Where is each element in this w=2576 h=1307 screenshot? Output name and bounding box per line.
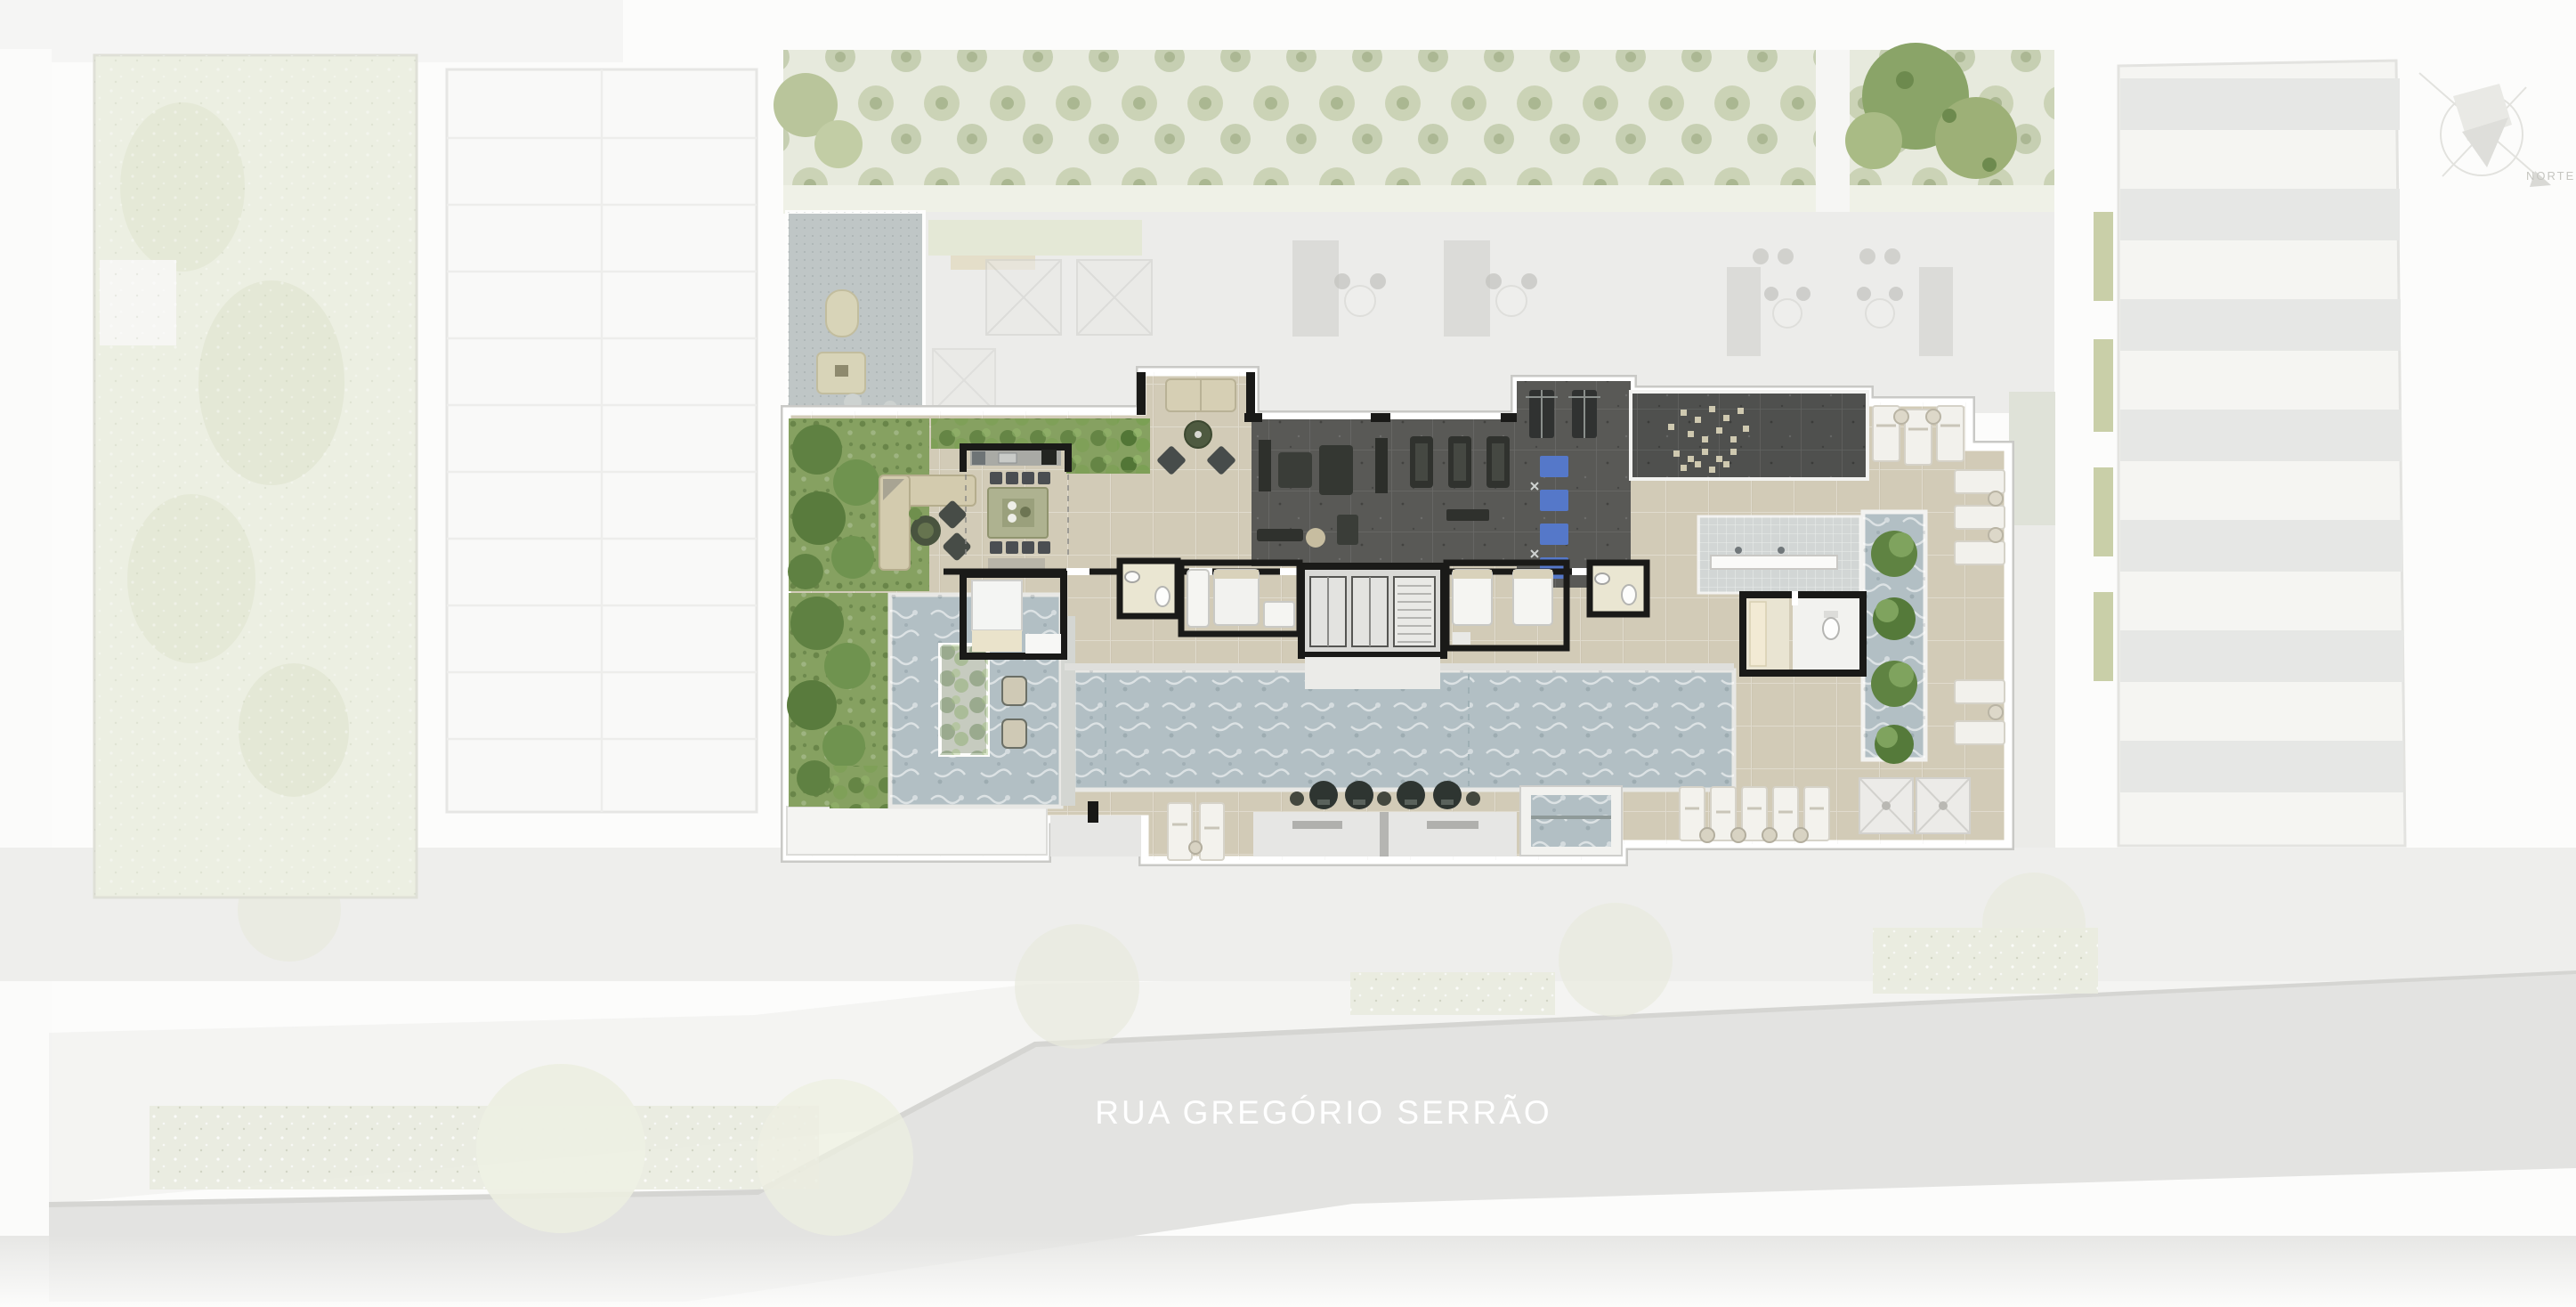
palm-tree-icon xyxy=(787,680,837,730)
pool-planter-texture xyxy=(940,645,988,755)
sink-icon xyxy=(1595,573,1609,584)
site-plan-canvas: RUA GREGÓRIO SERRÃO xyxy=(0,0,2576,1307)
entry-court xyxy=(787,212,924,415)
palm-tree-icon xyxy=(792,425,842,475)
kitchen-cooktop-icon xyxy=(1041,450,1057,465)
site-plan-drawing: RUA GREGÓRIO SERRÃO xyxy=(0,0,2576,1307)
jacuzzi xyxy=(1520,786,1622,856)
wall-pier xyxy=(1501,413,1519,422)
elevator-lobby xyxy=(1305,657,1440,689)
vanity-counter xyxy=(1711,556,1837,569)
palm-tree-icon xyxy=(831,536,874,579)
dumbbell-rack-icon xyxy=(1446,509,1489,521)
garden-texture xyxy=(94,55,417,897)
sun-lounger xyxy=(1955,470,2005,493)
smith-machine-icon xyxy=(1375,438,1388,493)
egg-chair-cushion xyxy=(1317,800,1330,805)
terrace-planter-faded xyxy=(1444,240,1490,337)
sun-lounger xyxy=(1168,803,1192,860)
side-table xyxy=(1700,828,1714,842)
sun-lounger xyxy=(1955,680,2005,703)
round-armchair-cushion xyxy=(918,523,934,539)
sun-lounger xyxy=(1200,803,1224,860)
terrace-umbrella-faded xyxy=(986,260,1061,335)
sauna-bench xyxy=(1750,602,1766,666)
side-planting-strip xyxy=(2009,392,2055,525)
room-walls xyxy=(1120,561,1178,616)
street-tree xyxy=(476,1064,645,1233)
street-bottom-fade xyxy=(0,1236,2576,1307)
terrace-umbrella-faded xyxy=(1077,260,1152,335)
table-plate xyxy=(1008,501,1017,510)
cable-machine-icon xyxy=(1319,445,1353,495)
corner-tree xyxy=(814,120,863,168)
tree-shadow-detail xyxy=(1942,109,1956,123)
egg-chair xyxy=(1433,781,1462,809)
room-bench xyxy=(1453,632,1470,645)
side-table xyxy=(1926,410,1940,424)
in-pool-lounger xyxy=(1002,719,1026,748)
top-left-wash xyxy=(0,0,623,62)
wall-pier xyxy=(1371,413,1390,422)
bed-headboard xyxy=(1513,570,1552,579)
palm-tree-icon xyxy=(797,760,832,796)
palm-tree-icon xyxy=(788,554,823,589)
fire-bowl-icon xyxy=(1290,792,1304,806)
street-name-label: RUA GREGÓRIO SERRÃO xyxy=(1095,1094,1551,1131)
street-zone: RUA GREGÓRIO SERRÃO xyxy=(0,848,2576,1307)
walkway-south xyxy=(787,807,1047,855)
egg-chair-cushion xyxy=(1353,800,1365,805)
side-table xyxy=(1989,705,2003,719)
table-plate xyxy=(1008,514,1017,523)
faucet-icon xyxy=(1778,547,1785,554)
large-tree xyxy=(1845,112,1902,169)
upper-terrace-faded xyxy=(922,212,2054,413)
porch-planter xyxy=(1292,821,1342,829)
hedge-gap xyxy=(1816,50,1850,212)
egg-chair xyxy=(1309,781,1338,809)
steam-bench xyxy=(972,630,1022,652)
terrace-hedge-faded xyxy=(928,220,1142,256)
kitchen-sink-icon xyxy=(999,453,1017,463)
massage-bed xyxy=(1187,570,1209,627)
terrace-planter-faded xyxy=(1919,267,1953,356)
egg-chair xyxy=(1397,781,1425,809)
side-table xyxy=(1989,491,2003,506)
steam-glass-cabin xyxy=(972,580,1022,630)
hedge-band-light-edge xyxy=(783,185,2054,214)
side-table xyxy=(1189,841,1202,854)
palm-tree-icon xyxy=(824,643,871,689)
door-gap xyxy=(1792,591,1798,605)
porch-divider xyxy=(1380,812,1389,856)
toilet-icon xyxy=(1155,587,1170,606)
solarium-texture xyxy=(1631,392,1867,479)
sink-icon xyxy=(1125,572,1139,582)
planting-segment xyxy=(2094,467,2113,556)
sun-lounger xyxy=(1955,541,2005,564)
side-table xyxy=(1762,828,1777,842)
exercise-ball-icon xyxy=(1306,528,1325,548)
faucet-icon xyxy=(1735,547,1742,554)
sauna-wc-block xyxy=(1743,591,1863,673)
egg-chair-cushion xyxy=(1441,800,1454,805)
sidewalk-tree xyxy=(1015,924,1139,1049)
sidewalk-hedge-mid-texture xyxy=(1350,972,1555,1015)
elevator-core xyxy=(1301,566,1444,689)
egg-chair-cushion xyxy=(1405,800,1417,805)
bistro-table-center xyxy=(1195,431,1202,438)
vestibule xyxy=(1025,634,1061,653)
wall-pier xyxy=(1246,372,1255,415)
shade-umbrella xyxy=(1859,778,1913,833)
side-table xyxy=(1794,828,1808,842)
compass-north-label: NORTE xyxy=(2526,169,2575,183)
solarium-lounge xyxy=(1631,392,1867,479)
stairwell xyxy=(1394,577,1435,646)
rear-hedge-band xyxy=(774,43,2054,214)
toilet-icon xyxy=(1622,585,1636,605)
lounger-row-north xyxy=(1873,406,1964,465)
table-centerpiece xyxy=(1020,507,1031,517)
side-table xyxy=(1731,828,1746,842)
toilet-icon xyxy=(1823,618,1839,639)
exercise-mat-icon xyxy=(1337,515,1358,545)
sun-lounger xyxy=(1955,721,2005,744)
jacuzzi-bench xyxy=(1531,816,1611,819)
planting-segment xyxy=(2094,592,2113,681)
palm-tree-icon xyxy=(833,459,879,506)
street-tree xyxy=(757,1079,913,1236)
shade-umbrella xyxy=(1916,778,1970,833)
wall-pier xyxy=(1137,372,1146,415)
fire-bowl-icon xyxy=(1466,792,1480,806)
fire-bowl-icon xyxy=(1377,792,1391,806)
lounger-row-east xyxy=(1955,470,2005,564)
terrace-planter-faded xyxy=(1727,267,1761,356)
terrace-umbrella-faded xyxy=(933,349,995,411)
weight-machine-icon xyxy=(1278,452,1312,488)
amenity-floor-plan xyxy=(787,372,2008,860)
fountain-drain xyxy=(835,365,848,377)
gym xyxy=(1244,413,1519,566)
palm-tree-icon xyxy=(792,491,846,545)
left-margin xyxy=(0,49,52,1295)
bed-headboard xyxy=(1453,570,1492,579)
in-pool-lounger xyxy=(1002,677,1026,705)
door-gap xyxy=(1066,568,1090,575)
gate-post xyxy=(1088,801,1098,823)
hedge-patch-texture xyxy=(1117,418,1150,470)
restroom-east xyxy=(1590,563,1647,614)
planting-segment xyxy=(2094,339,2113,432)
left-neighbor-building xyxy=(447,69,757,812)
palm-tree-icon xyxy=(790,597,844,650)
bed-headboard xyxy=(1214,570,1259,579)
palm-tree-icon xyxy=(822,725,865,767)
lounger-row-south xyxy=(1680,787,1829,842)
barbell-bench-icon xyxy=(1257,529,1303,541)
side-table xyxy=(1894,410,1908,424)
room-walls xyxy=(1590,563,1647,614)
tree-shadow-detail xyxy=(1896,71,1914,89)
side-table xyxy=(1989,528,2003,542)
left-garden xyxy=(94,55,417,897)
egg-chair xyxy=(1345,781,1373,809)
bench-pad xyxy=(1454,443,1466,481)
terrace-planter-faded xyxy=(1292,240,1339,337)
sidewalk-tree xyxy=(1559,903,1673,1017)
planting-segment xyxy=(2094,212,2113,301)
porch-planter xyxy=(1427,821,1478,829)
potted-plant-icon xyxy=(909,507,921,520)
stretching-room xyxy=(1517,381,1631,588)
toilet-tank xyxy=(1824,611,1838,618)
kitchen-appliance-icon xyxy=(972,451,985,465)
wall-pier xyxy=(1244,413,1262,422)
tree-shadow-detail xyxy=(1982,158,1997,172)
sun-lounger xyxy=(1955,506,2005,529)
bench-pad xyxy=(1492,443,1504,481)
bench-pad xyxy=(1415,443,1428,481)
sidewalk-hedge-right-texture xyxy=(1873,928,2098,994)
fountain-spout xyxy=(826,290,858,337)
squat-rack-icon xyxy=(1259,440,1271,491)
restroom-mid xyxy=(1120,561,1178,616)
side-paving-strip xyxy=(2009,525,2055,848)
massage-stool xyxy=(1264,602,1294,627)
